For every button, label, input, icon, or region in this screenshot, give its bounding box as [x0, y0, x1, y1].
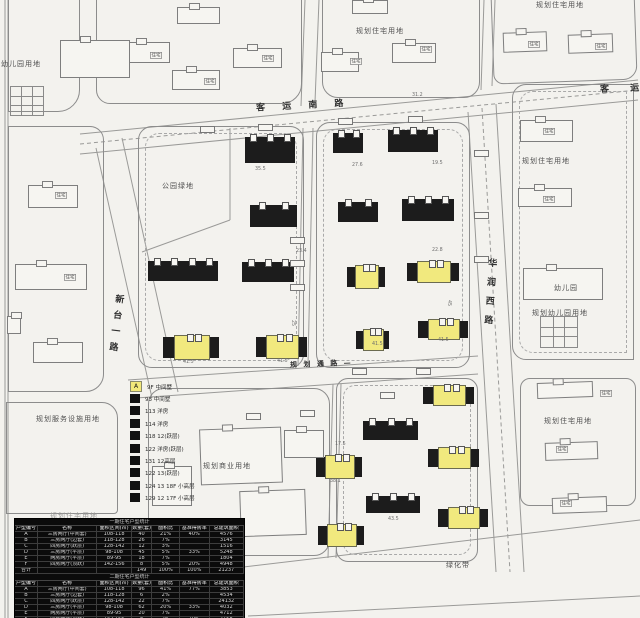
legend-label: 122 洋房(跃层) [145, 444, 184, 452]
legend-label: 114 洋房 [145, 419, 168, 427]
window-notch [345, 199, 352, 207]
window-notch [189, 258, 196, 266]
annotation-box [290, 284, 305, 291]
table-cell: 98-108 [97, 605, 131, 610]
legend-label: 122 13(跃层) [145, 469, 180, 477]
unit-stats-tables: 一期住宅户型统计户型编号名称面积区间(㎡)数量(套)面积比基准得房率总建筑面积A… [14, 518, 245, 618]
table-cell: 18 [132, 556, 153, 561]
table-cell: 4534 [210, 593, 244, 598]
legend: A9F 中间墅93 中间墅113 洋房114 洋房118 12(跃层)122 洋… [130, 380, 199, 504]
table-cell: 3853 [210, 587, 244, 592]
table-cell: 1516 [210, 544, 244, 549]
building-outline [199, 427, 283, 486]
legend-item: 131 12高层 [130, 454, 199, 466]
building-highlighted [407, 263, 459, 281]
window-notch [337, 523, 344, 531]
table-cell: 108-118 [97, 587, 131, 592]
window-notch [449, 446, 456, 454]
annotation-box [416, 368, 431, 375]
land-use-label: 规划服务设施用地 [36, 414, 100, 424]
building-solid [363, 421, 418, 440]
table-cell: 89-95 [97, 611, 131, 616]
land-use-label: 规划住宅用地 [522, 156, 570, 166]
table-cell: 7% [152, 611, 179, 616]
window-notch [345, 523, 352, 531]
table-cell: 基准得房率 [180, 581, 210, 586]
building-tag: 住宅 [204, 78, 216, 85]
table-cell: 总建筑面积 [210, 581, 244, 586]
table-cell [97, 568, 131, 573]
building-highlighted [418, 321, 468, 338]
table-cell: A [15, 532, 38, 537]
annotation-box [380, 392, 395, 399]
land-use-label: 规划住宅用地 [544, 416, 592, 426]
table-cell: 24132 [210, 599, 244, 604]
window-notch [206, 258, 213, 266]
table-cell: 20 [132, 611, 153, 616]
window-notch [408, 196, 415, 204]
table-cell: 33% [180, 550, 210, 555]
legend-item: 113 洋房 [130, 405, 199, 417]
legend-item: 93 中间墅 [130, 392, 199, 404]
window-notch [335, 454, 342, 462]
legend-label: 129 12 17F 小高层 [145, 494, 195, 502]
window-notch [248, 259, 255, 267]
table-cell: 118-128 [97, 593, 131, 598]
building-tag: 住宅 [595, 43, 607, 50]
table-cell: F [15, 562, 38, 567]
building-solid [245, 137, 295, 163]
table-cell: D [15, 550, 38, 555]
table-section-2: 二期住宅户型统计户型编号名称面积区间(㎡)数量(套)面积比基准得房率总建筑面积A… [15, 574, 244, 618]
table-cell: 4032 [210, 605, 244, 610]
dimension-label: 17.5 [335, 441, 346, 447]
building-solid [333, 133, 363, 153]
legend-marker [130, 444, 140, 453]
table-cell: 总建筑面积 [210, 526, 244, 531]
table-cell: 面积区间(㎡) [97, 526, 131, 531]
table-section-1: 一期住宅户型统计户型编号名称面积区间(㎡)数量(套)面积比基准得房率总建筑面积A… [15, 519, 244, 574]
table-cell: 1804 [210, 556, 244, 561]
table-cell: A [15, 587, 38, 592]
window-notch [458, 446, 465, 454]
table-cell: 户型编号 [15, 581, 38, 586]
building-tag: 住宅 [150, 52, 162, 59]
table-cell: 两房两厅(平层) [38, 611, 98, 616]
table-cell: 3% [152, 544, 179, 549]
table-cell [180, 599, 210, 604]
building-solid [402, 199, 454, 221]
annotation-box [408, 116, 423, 123]
table-cell: 三房两厅(边套) [38, 593, 98, 598]
dimension-label: 22.8 [432, 247, 443, 253]
table-cell: 142-156 [97, 562, 131, 567]
table-cell: 7% [152, 599, 179, 604]
table-cell: 三房两厅(平层) [38, 550, 98, 555]
window-notch [372, 493, 379, 501]
legend-marker [130, 481, 140, 490]
building-highlighted [428, 449, 479, 467]
window-notch [429, 260, 436, 268]
window-notch [343, 454, 350, 462]
table-cell: 100% [180, 568, 210, 573]
window-notch [408, 493, 415, 501]
window-notch [444, 384, 451, 392]
window-notch [277, 334, 284, 342]
table-cell: B [15, 593, 38, 598]
window-notch [369, 418, 376, 426]
legend-marker [130, 468, 140, 477]
window-notch [467, 506, 474, 514]
legend-label: 118 12(跃层) [145, 432, 180, 440]
building-outline [28, 185, 78, 208]
legend-marker: A [130, 381, 142, 392]
window-notch [195, 334, 202, 342]
legend-marker [130, 394, 140, 403]
legend-item: 124 13 18F 小高层 [130, 479, 199, 491]
building-solid [242, 262, 294, 282]
table-cell: 四房两厅(顶跃) [38, 562, 98, 567]
dimension-label: 41.5 [183, 359, 194, 365]
table-cell: 6 [132, 593, 153, 598]
building-solid [366, 496, 420, 513]
setback-line [145, 133, 297, 361]
land-use-label: 规划幼儿园用地 [532, 308, 588, 318]
annotation-box [474, 150, 489, 157]
table-cell: 33% [180, 605, 210, 610]
building-tag: 住宅 [543, 128, 555, 135]
legend-item: 122 13(跃层) [130, 467, 199, 479]
table-cell: 77% [180, 587, 210, 592]
building-highlighted [256, 337, 307, 357]
table-cell: 2% [152, 593, 179, 598]
playground-grid [10, 86, 44, 116]
table-cell: 62 [132, 605, 153, 610]
window-notch [187, 334, 194, 342]
dimension-label: 38.1 [330, 478, 341, 484]
dimension-label: 45 [446, 300, 452, 306]
table-cell: 三房两厅(中间套) [38, 587, 98, 592]
legend-marker [130, 493, 140, 502]
table-cell: 三房两厅(边套) [38, 538, 98, 543]
building-tag: 住宅 [350, 58, 362, 65]
window-notch [375, 328, 382, 336]
table-cell: D [15, 605, 38, 610]
legend-label: 113 洋房 [145, 407, 168, 415]
building-outline [15, 264, 87, 290]
building-tag: 住宅 [560, 500, 572, 507]
site-plan-image: 幼儿园用地规划住宅用地规划住宅用地公园绿地规划住宅用地幼儿园规划幼儿园用地规划服… [0, 0, 640, 618]
table-cell: 21% [152, 532, 179, 537]
window-notch [442, 196, 449, 204]
dimension-label: 41.5 [277, 358, 288, 364]
table-title: 一期住宅户型统计 [15, 519, 244, 526]
window-notch [284, 134, 291, 142]
table-cell: 名称 [38, 526, 98, 531]
annotation-box [246, 413, 261, 420]
building-tag: 住宅 [262, 55, 274, 62]
dimension-label: 31.2 [412, 92, 423, 98]
table-cell: 100% [152, 568, 179, 573]
table-cell: 四房两厅(跃层) [38, 544, 98, 549]
table-cell [180, 538, 210, 543]
legend-marker [130, 456, 140, 465]
table-title: 二期住宅户型统计 [15, 574, 244, 581]
table-cell: 合计 [15, 568, 38, 573]
building-highlighted [438, 509, 488, 527]
table-cell: 面积区间(㎡) [97, 581, 131, 586]
legend-label: 93 中间墅 [145, 394, 170, 402]
table-cell: 20% [180, 562, 210, 567]
window-notch [459, 506, 466, 514]
dimension-label: 27.6 [352, 162, 363, 168]
window-notch [453, 384, 460, 392]
window-notch [427, 127, 434, 135]
legend-item: 114 洋房 [130, 417, 199, 429]
window-notch [171, 258, 178, 266]
building-tag: 住宅 [556, 446, 568, 453]
legend-marker [130, 431, 140, 440]
table-cell: 20% [152, 605, 179, 610]
window-notch [250, 134, 257, 142]
table-cell: 面积比 [152, 526, 179, 531]
building-outline [60, 40, 130, 78]
table-cell: B [15, 538, 38, 543]
building-tag: 住宅 [420, 46, 432, 53]
table-cell: 21237 [210, 568, 244, 573]
legend-item: 118 12(跃层) [130, 430, 199, 442]
building-outline [233, 48, 282, 68]
land-use-label: 幼儿园用地 [1, 59, 41, 69]
building-tag: 住宅 [64, 274, 76, 281]
table-cell: 98-108 [97, 550, 131, 555]
table-cell [180, 611, 210, 616]
land-use-label: 规划住宅用地 [536, 0, 584, 10]
table-cell: C [15, 544, 38, 549]
dimension-label: 35.5 [255, 166, 266, 172]
table-cell: 45 [132, 550, 153, 555]
table-cell: 三房两厅(中间套) [38, 532, 98, 537]
building-outline [33, 342, 83, 363]
table-cell: 40% [180, 532, 210, 537]
table-cell: 两房两厅(平层) [38, 556, 98, 561]
legend-label: 124 13 18F 小高层 [145, 481, 195, 489]
table-cell [38, 568, 98, 573]
building-highlighted [163, 337, 219, 358]
table-cell: 26 [132, 538, 153, 543]
table-cell: 8 [132, 562, 153, 567]
building-solid [250, 205, 297, 227]
building-outline [352, 0, 388, 14]
window-notch [439, 318, 446, 326]
land-use-label: 幼儿园 [554, 283, 578, 293]
playground-grid [540, 316, 578, 348]
building-outline [177, 7, 220, 24]
annotation-box [474, 256, 489, 263]
table-cell: 4712 [210, 611, 244, 616]
window-notch [365, 199, 372, 207]
window-notch [265, 259, 272, 267]
window-notch [338, 130, 345, 138]
table-cell: 4948 [210, 562, 244, 567]
building-outline [537, 381, 594, 399]
window-notch [388, 418, 395, 426]
annotation-box [352, 368, 367, 375]
table-cell: 5% [152, 562, 179, 567]
building-highlighted [316, 457, 362, 477]
legend-marker [130, 406, 140, 415]
annotation-box [338, 118, 353, 125]
table-cell: C [15, 599, 38, 604]
table-cell: 四房两厅(跃层) [38, 599, 98, 604]
table-cell: 96 [132, 587, 153, 592]
annotation-box [290, 237, 305, 244]
window-notch [267, 134, 274, 142]
annotation-box [474, 212, 489, 219]
building-tag: 住宅 [600, 390, 612, 397]
table-cell [180, 544, 210, 549]
window-notch [425, 196, 432, 204]
window-notch [282, 259, 289, 267]
window-notch [437, 260, 444, 268]
building-tag: 住宅 [528, 41, 540, 48]
table-cell: 40 [132, 532, 153, 537]
table-cell: 12 [132, 544, 153, 549]
land-use-label: 绿化带 [446, 560, 470, 570]
dimension-label: 23.4 [296, 248, 307, 254]
legend-label: 9F 中间墅 [147, 382, 172, 390]
dimension-label: 19.5 [432, 160, 443, 166]
table-cell: 22 [132, 599, 153, 604]
legend-item: A9F 中间墅 [130, 380, 199, 392]
window-notch [406, 418, 413, 426]
annotation-box [200, 126, 215, 133]
table-cell: 7% [152, 538, 179, 543]
land-use-label: 规划住宅用地 [356, 26, 404, 36]
land-use-label: 规划商业用地 [203, 461, 251, 471]
annotation-box [258, 124, 273, 131]
building-highlighted [423, 387, 474, 404]
annotation-box [290, 260, 305, 267]
dimension-label: 41.5 [438, 337, 449, 343]
window-notch [259, 202, 266, 210]
table-cell: 7% [152, 556, 179, 561]
window-notch [410, 127, 417, 135]
table-cell [180, 593, 210, 598]
building-solid [338, 202, 378, 222]
legend-item: 122 洋房(跃层) [130, 442, 199, 454]
window-notch [353, 130, 360, 138]
window-notch [282, 202, 289, 210]
window-notch [286, 334, 293, 342]
building-highlighted [318, 526, 364, 545]
table-cell: 基准得房率 [180, 526, 210, 531]
annotation-box [300, 410, 315, 417]
building-tag: 住宅 [55, 192, 67, 199]
window-notch [369, 264, 376, 272]
table-cell: 149 [132, 568, 153, 573]
table-cell: 户型编号 [15, 526, 38, 531]
building-solid [388, 130, 438, 152]
table-cell: 3145 [210, 538, 244, 543]
building-highlighted [347, 267, 385, 287]
table-cell: 三房两厅(平层) [38, 605, 98, 610]
land-use-label: 公园绿地 [162, 181, 194, 191]
building-outline [7, 316, 21, 334]
table-cell: 108-118 [97, 532, 131, 537]
table-cell: 128-142 [97, 599, 131, 604]
table-cell: 89-95 [97, 556, 131, 561]
window-notch [154, 258, 161, 266]
table-cell [180, 556, 210, 561]
building-outline [545, 441, 599, 461]
table-cell: 面积比 [152, 581, 179, 586]
dimension-label: 43.5 [388, 516, 399, 522]
table-cell: 5248 [210, 550, 244, 555]
table-cell: 数量(套) [132, 526, 153, 531]
table-cell: 41% [152, 587, 179, 592]
table-cell: E [15, 611, 38, 616]
legend-label: 131 12高层 [145, 456, 175, 464]
window-notch [390, 493, 397, 501]
building-tag: 住宅 [543, 196, 555, 203]
table-cell: 5% [152, 550, 179, 555]
table-cell: 数量(套) [132, 581, 153, 586]
dimension-label: 25 [290, 320, 296, 326]
dimension-label: 41.5 [372, 341, 383, 347]
table-cell: 名称 [38, 581, 98, 586]
table-cell: E [15, 556, 38, 561]
table-cell: 128-142 [97, 544, 131, 549]
window-notch [393, 127, 400, 135]
table-cell: 4576 [210, 532, 244, 537]
building-outline [503, 31, 548, 53]
window-notch [447, 318, 454, 326]
legend-item: 129 12 17F 小高层 [130, 492, 199, 504]
building-solid [148, 261, 218, 281]
table-cell: 118-128 [97, 538, 131, 543]
legend-marker [130, 419, 140, 428]
building-outline [239, 489, 307, 537]
building-outline [284, 430, 324, 458]
road-name-label: 客 运 [600, 80, 640, 95]
